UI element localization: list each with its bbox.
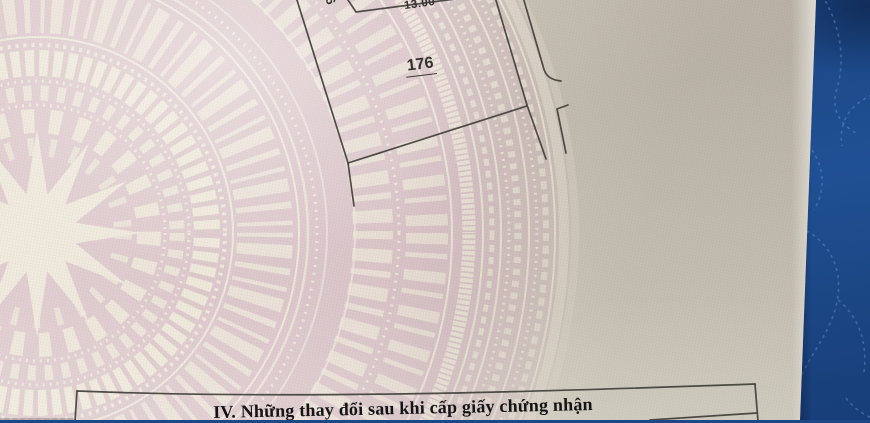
- boundary-line-left: [296, 0, 354, 206]
- dimension-bracket-lower: [557, 105, 568, 153]
- boundary-line-right: [495, 0, 546, 159]
- section-box-top-border: [77, 384, 755, 395]
- boundary-line-bottom: [348, 106, 527, 163]
- certificate-paper: 13.00 176 6 IV. Những thay đổi sau khi c…: [0, 0, 870, 420]
- section-box-left-border: [75, 391, 77, 420]
- parcel-number-label: 176: [404, 54, 437, 78]
- certificate-photo: 13.00 176 6 IV. Những thay đổi sau khi c…: [0, 0, 870, 420]
- dimension-bracket-upper: [523, 0, 561, 81]
- section-box-inner-line: [650, 413, 757, 420]
- section-box-right-border: [755, 384, 758, 420]
